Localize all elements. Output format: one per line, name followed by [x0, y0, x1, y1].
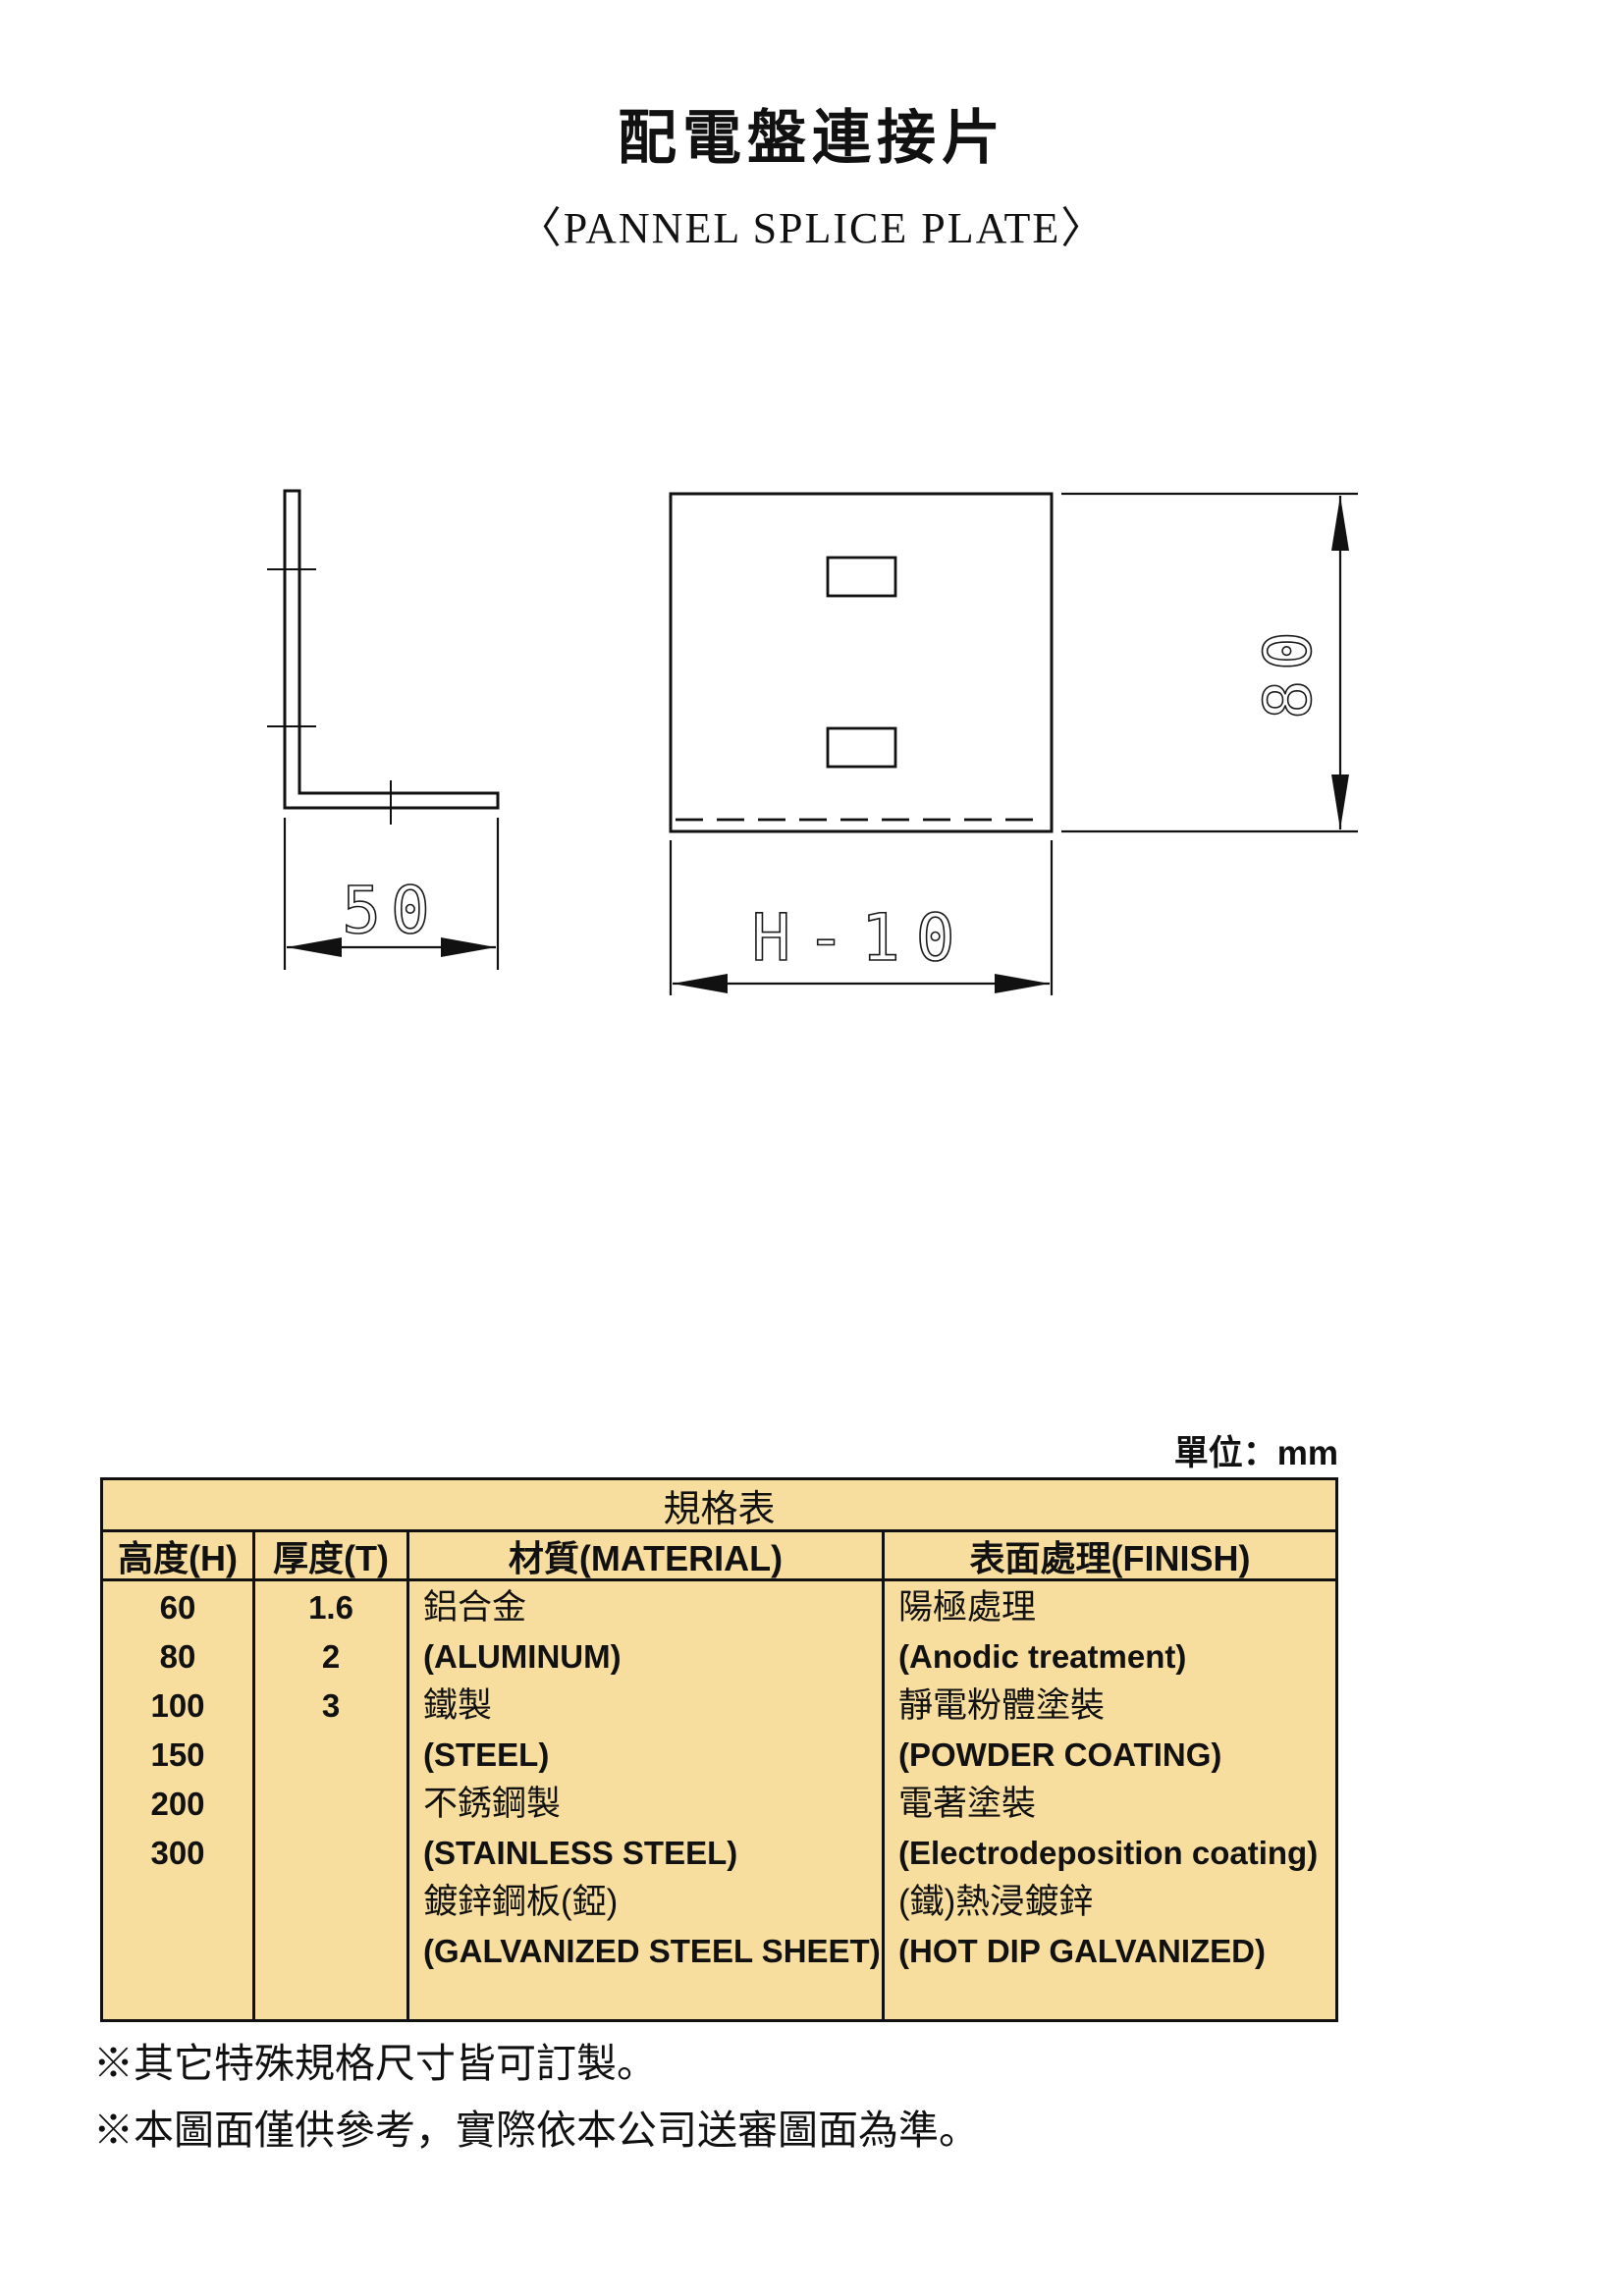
height-value: 150 [103, 1731, 252, 1780]
spec-table-title: 規格表 [103, 1480, 1335, 1532]
page-subtitle: 〈PANNEL SPLICE PLATE〉 [0, 192, 1624, 255]
thickness-value: 1.6 [255, 1583, 406, 1632]
finish-item: (鐵)熱浸鍍鋅 [885, 1878, 1335, 1927]
height-value: 60 [103, 1583, 252, 1632]
spec-sheet-page: 配電盤連接片 〈PANNEL SPLICE PLATE〉 50 [0, 0, 1624, 2296]
material-item: (STEEL) [409, 1731, 882, 1780]
technical-drawing: 50 80 H-10 [245, 471, 1394, 1021]
column-materials: 鋁合金 (ALUMINUM) 鐵製 (STEEL) 不銹鋼製 (STAINLES… [409, 1581, 885, 2022]
column-finishes: 陽極處理 (Anodic treatment) 靜電粉體塗裝 (POWDER C… [885, 1581, 1335, 2022]
height-value: 300 [103, 1829, 252, 1878]
front-width-dim-label: H-10 [752, 900, 971, 976]
finish-item: (POWDER COATING) [885, 1731, 1335, 1780]
arrow-right-icon [995, 974, 1050, 993]
material-item: (GALVANIZED STEEL SHEET) [409, 1927, 882, 1976]
header-height: 高度(H) [103, 1532, 255, 1578]
material-item: 鋁合金 [409, 1583, 882, 1632]
finish-item: 陽極處理 [885, 1583, 1335, 1632]
thickness-value: 2 [255, 1632, 406, 1682]
unit-label: 單位：mm [1174, 1425, 1338, 1475]
column-heights: 60 80 100 150 200 300 [103, 1581, 255, 2022]
front-view-outline [671, 494, 1052, 831]
arrow-left-icon [673, 974, 728, 993]
finish-item: 電著塗裝 [885, 1780, 1335, 1829]
height-value: 200 [103, 1780, 252, 1829]
dim-h10: H-10 [671, 840, 1052, 995]
finish-item: (Electrodeposition coating) [885, 1829, 1335, 1878]
header-thickness: 厚度(T) [255, 1532, 409, 1578]
side-width-dim-label: 50 [342, 873, 439, 948]
arrow-left-icon [287, 937, 342, 957]
height-value: 80 [103, 1632, 252, 1682]
dim-50: 50 [285, 818, 498, 970]
footnote-reference-only: ※本圖面僅供參考，實際依本公司送審圖面為準。 [93, 2097, 1468, 2156]
spec-table: 規格表 高度(H) 厚度(T) 材質(MATERIAL) 表面處理(FINISH… [100, 1477, 1338, 2022]
material-item: (ALUMINUM) [409, 1632, 882, 1682]
slot-hole-top [828, 558, 895, 596]
material-item: (STAINLESS STEEL) [409, 1829, 882, 1878]
page-title: 配電盤連接片 [0, 90, 1624, 176]
material-item: 不銹鋼製 [409, 1780, 882, 1829]
header-finish: 表面處理(FINISH) [885, 1532, 1335, 1578]
side-view-outline [267, 491, 498, 825]
spec-table-body: 60 80 100 150 200 300 1.6 2 3 鋁合金 (ALUMI… [103, 1581, 1335, 2022]
spec-table-header-row: 高度(H) 厚度(T) 材質(MATERIAL) 表面處理(FINISH) [103, 1532, 1335, 1581]
finish-item: (Anodic treatment) [885, 1632, 1335, 1682]
material-item: 鐵製 [409, 1682, 882, 1731]
material-item: 鍍鋅鋼板(錏) [409, 1878, 882, 1927]
arrow-right-icon [441, 937, 496, 957]
arrow-down-icon [1331, 774, 1349, 829]
column-thicknesses: 1.6 2 3 [255, 1581, 409, 2022]
front-height-dim-label: 80 [1251, 621, 1326, 719]
finish-item: (HOT DIP GALVANIZED) [885, 1927, 1335, 1976]
thickness-value: 3 [255, 1682, 406, 1731]
footnote-custom-sizes: ※其它特殊規格尺寸皆可訂製。 [93, 2030, 1468, 2089]
height-value: 100 [103, 1682, 252, 1731]
slot-hole-bottom [828, 728, 895, 767]
header-material: 材質(MATERIAL) [409, 1532, 885, 1578]
arrow-up-icon [1331, 496, 1349, 551]
finish-item: 靜電粉體塗裝 [885, 1682, 1335, 1731]
dim-80: 80 [1061, 494, 1358, 831]
